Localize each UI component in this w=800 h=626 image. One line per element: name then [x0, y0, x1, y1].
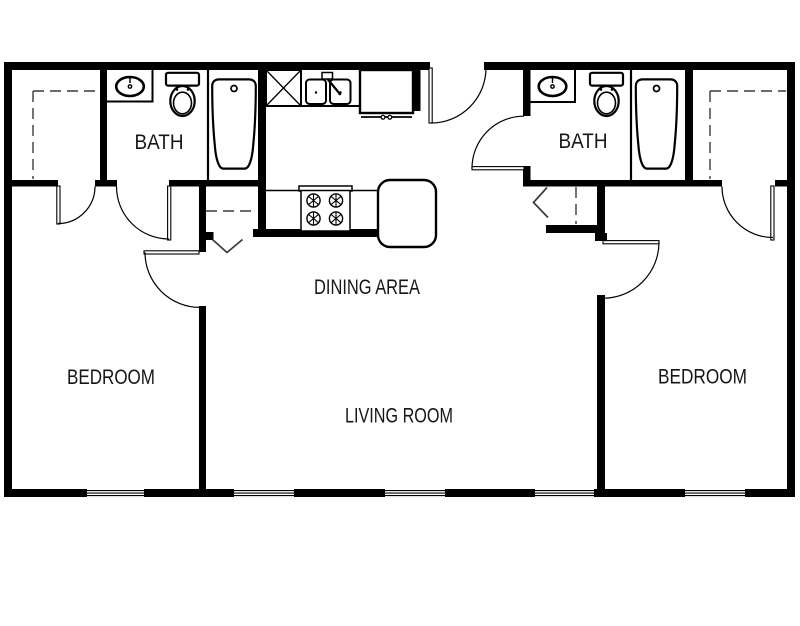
svg-text:BATH: BATH: [135, 131, 184, 154]
svg-text:LIVING ROOM: LIVING ROOM: [345, 405, 453, 428]
svg-text:BEDROOM: BEDROOM: [658, 366, 747, 389]
svg-text:DINING AREA: DINING AREA: [314, 276, 420, 299]
svg-text:BEDROOM: BEDROOM: [67, 366, 155, 389]
svg-text:BATH: BATH: [559, 130, 608, 153]
